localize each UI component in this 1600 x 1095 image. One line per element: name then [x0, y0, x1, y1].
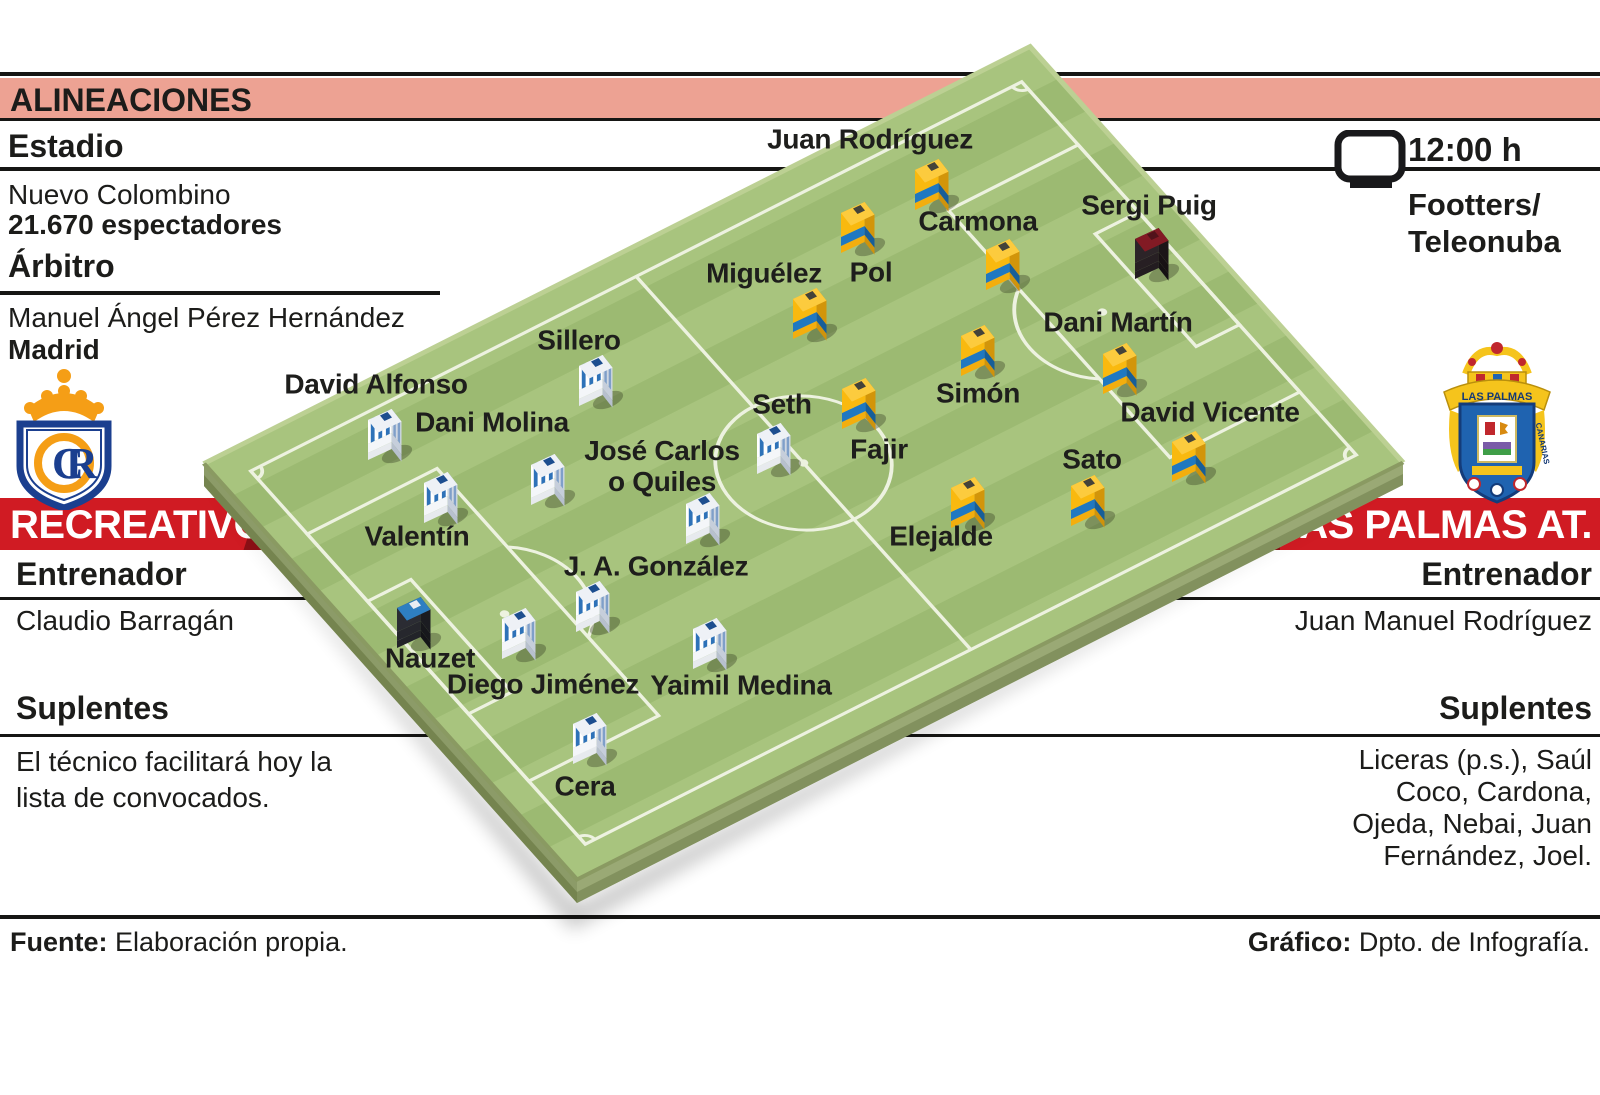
player-label: Valentín — [365, 521, 470, 552]
player-figure-recreativo — [561, 698, 623, 774]
player-label: Juan Rodríguez — [767, 124, 973, 155]
player-figure-recreativo — [519, 439, 581, 515]
player-label: Sergi Puig — [1081, 190, 1216, 221]
player-label: José Carlos o Quiles — [584, 435, 739, 497]
player-label: Sato — [1062, 444, 1121, 475]
player-label: Carmona — [918, 206, 1037, 237]
player-label: David Alfonso — [284, 369, 467, 400]
infographic-canvas: ALINEACIONES Estadio Nuevo Colombino 21.… — [0, 0, 1600, 1095]
player-label: Diego Jiménez — [447, 669, 639, 700]
player-label: Elejalde — [889, 521, 992, 552]
player-label: Dani Molina — [415, 407, 569, 438]
player-label: Miguélez — [706, 258, 822, 289]
player-figure-recreativo — [681, 603, 743, 679]
player-figure-recreativo — [356, 394, 418, 470]
player-label: Seth — [752, 389, 811, 420]
players-layer: Juan RodríguezCarmonaPolMiguélezSergi Pu… — [0, 0, 1600, 1095]
player-label: Simón — [936, 378, 1020, 409]
player-label: Cera — [554, 771, 615, 802]
player-label: Dani Martín — [1043, 307, 1192, 338]
goalkeeper-figure-laspalmas — [1123, 213, 1185, 289]
player-figure-laspalmas — [830, 363, 892, 439]
player-label: Yaimil Medina — [650, 670, 831, 701]
player-label: David Vicente — [1120, 397, 1299, 428]
player-figure-laspalmas — [1091, 328, 1153, 404]
player-label: Pol — [850, 257, 893, 288]
player-label: J. A. González — [564, 551, 749, 582]
player-label: Fajir — [850, 434, 908, 465]
player-figure-laspalmas — [949, 310, 1011, 386]
player-label: Sillero — [537, 325, 621, 356]
player-figure-laspalmas — [829, 187, 891, 263]
player-figure-recreativo — [490, 593, 552, 669]
